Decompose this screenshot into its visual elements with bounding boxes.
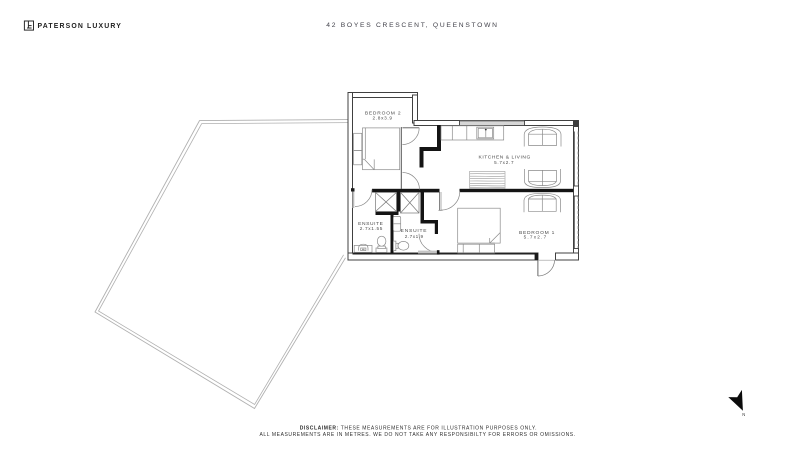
svg-text:2.7x1.9: 2.7x1.9 bbox=[405, 234, 424, 239]
svg-text:5.7x2.7: 5.7x2.7 bbox=[494, 160, 514, 165]
svg-text:2.7x1.55: 2.7x1.55 bbox=[360, 226, 383, 231]
svg-text:N: N bbox=[742, 412, 745, 417]
svg-text:ALL MEASUREMENTS ARE IN METRES: ALL MEASUREMENTS ARE IN METRES. WE DO NO… bbox=[259, 432, 575, 438]
svg-text:42 BOYES CRESCENT, QUEENSTOWN: 42 BOYES CRESCENT, QUEENSTOWN bbox=[326, 22, 498, 29]
svg-text:5.7x2.7: 5.7x2.7 bbox=[524, 235, 548, 240]
svg-text:PATERSON LUXURY: PATERSON LUXURY bbox=[38, 23, 123, 30]
svg-text:DISCLAIMER: THESE MEASUREMENTS: DISCLAIMER: THESE MEASUREMENTS ARE FOR I… bbox=[300, 426, 537, 432]
svg-text:2.8x3.9: 2.8x3.9 bbox=[373, 116, 393, 121]
